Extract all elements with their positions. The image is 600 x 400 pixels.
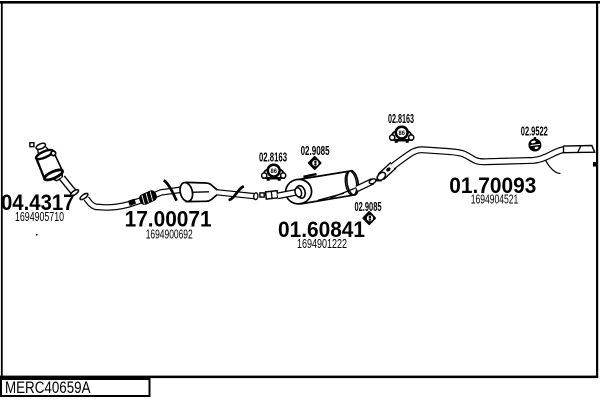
svg-text:1694900692: 1694900692 xyxy=(146,227,193,242)
svg-text:MERC40659A: MERC40659A xyxy=(5,379,91,397)
svg-text:02.8163: 02.8163 xyxy=(388,111,414,126)
svg-text:02.9522: 02.9522 xyxy=(521,123,548,138)
svg-text:1694905710: 1694905710 xyxy=(15,209,64,224)
svg-text:1694901222: 1694901222 xyxy=(297,236,347,251)
svg-text:02.9085: 02.9085 xyxy=(301,143,330,158)
svg-text:1694904521: 1694904521 xyxy=(471,192,519,207)
svg-text:02.8163: 02.8163 xyxy=(259,149,287,164)
svg-text:02.9085: 02.9085 xyxy=(355,199,382,214)
